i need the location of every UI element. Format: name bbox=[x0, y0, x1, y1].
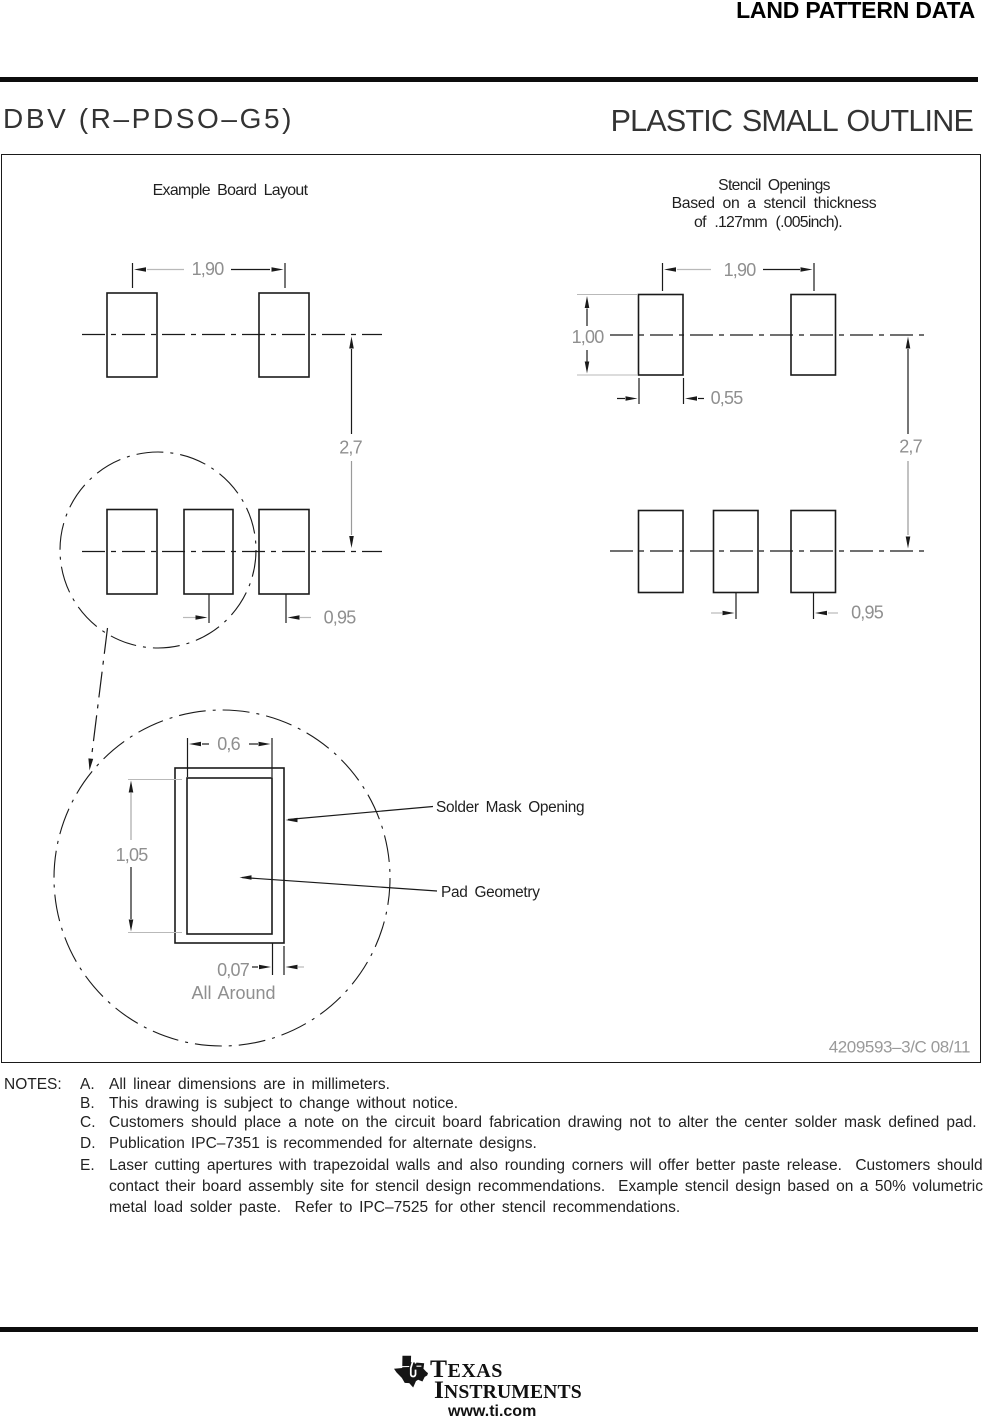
svg-text:0,6: 0,6 bbox=[217, 734, 240, 754]
svg-text:All Around: All Around bbox=[191, 983, 275, 1003]
svg-text:0,95: 0,95 bbox=[851, 603, 884, 623]
svg-text:0,07: 0,07 bbox=[217, 960, 250, 980]
svg-text:0,55: 0,55 bbox=[711, 388, 744, 408]
svg-text:1,00: 1,00 bbox=[572, 327, 605, 347]
svg-text:Based on a stencil thickness: Based on a stencil thickness bbox=[672, 195, 877, 212]
svg-text:2,7: 2,7 bbox=[899, 437, 922, 457]
svg-text:Example Board Layout: Example Board Layout bbox=[153, 182, 309, 199]
svg-text:Stencil Openings: Stencil Openings bbox=[718, 177, 831, 194]
svg-text:0,95: 0,95 bbox=[324, 608, 357, 628]
svg-text:1,05: 1,05 bbox=[116, 845, 149, 865]
svg-text:4209593–3/C 08/11: 4209593–3/C 08/11 bbox=[829, 1038, 970, 1057]
svg-text:of .127mm (.005inch).: of .127mm (.005inch). bbox=[694, 214, 842, 231]
svg-text:2,7: 2,7 bbox=[339, 438, 362, 458]
svg-text:1,90: 1,90 bbox=[192, 259, 225, 279]
svg-text:Solder Mask Opening: Solder Mask Opening bbox=[436, 799, 584, 816]
svg-text:1,90: 1,90 bbox=[724, 260, 757, 280]
svg-text:Pad Geometry: Pad Geometry bbox=[441, 884, 540, 901]
